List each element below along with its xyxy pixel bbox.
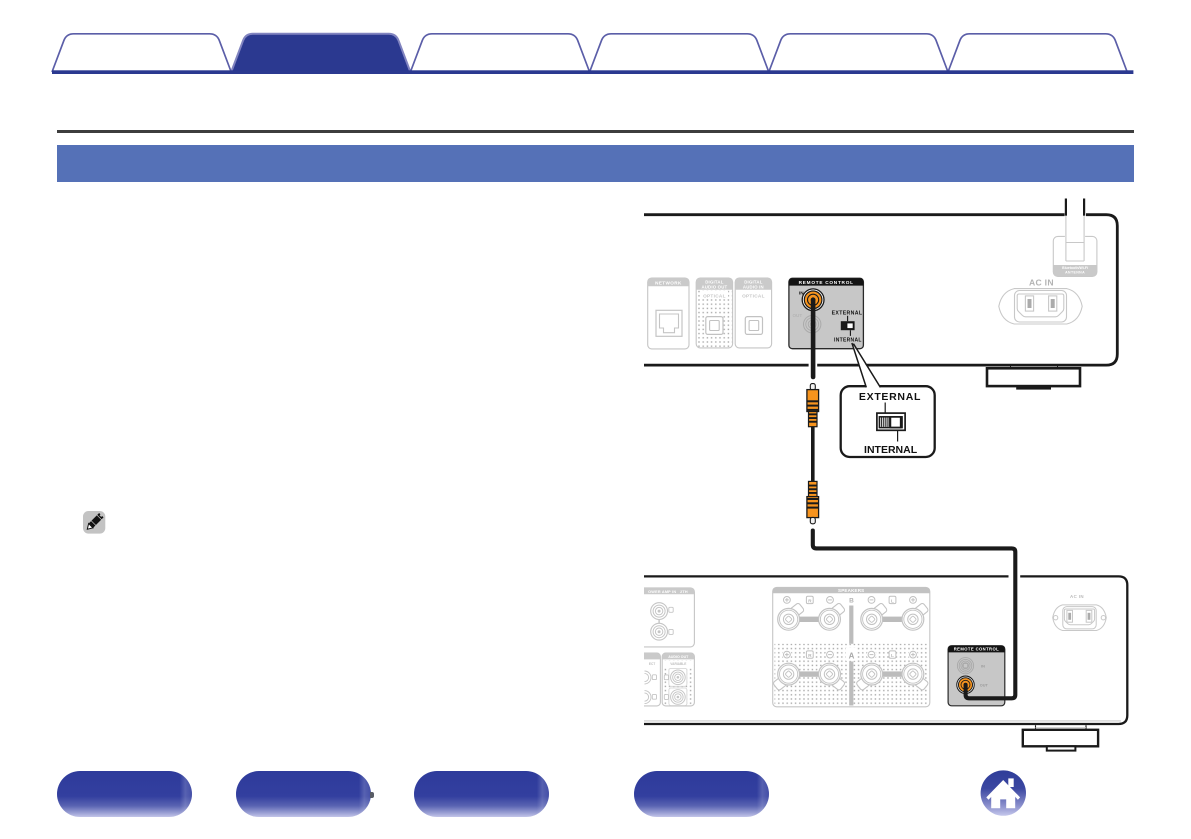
svg-text:AC IN: AC IN xyxy=(1070,594,1084,599)
svg-text:A: A xyxy=(849,651,855,660)
svg-text:L: L xyxy=(891,598,894,604)
svg-text:AUDIO IN: AUDIO IN xyxy=(743,285,764,290)
svg-text:ANTENNA: ANTENNA xyxy=(1065,271,1085,275)
svg-text:SPEAKERS: SPEAKERS xyxy=(838,588,864,593)
svg-text:INTERNAL: INTERNAL xyxy=(864,444,918,456)
svg-text:INTERNAL: INTERNAL xyxy=(834,337,862,343)
svg-text:AUDIO OUT: AUDIO OUT xyxy=(668,655,689,659)
svg-text:IN: IN xyxy=(981,664,985,668)
svg-text:REMOTE CONTROL: REMOTE CONTROL xyxy=(954,647,999,652)
svg-text:AUDIO OUT: AUDIO OUT xyxy=(701,285,727,290)
svg-text:R: R xyxy=(808,653,812,659)
svg-text:OUT: OUT xyxy=(792,313,802,318)
svg-text:L: L xyxy=(891,653,894,659)
svg-text:OPTICAL: OPTICAL xyxy=(703,293,726,298)
svg-text:REMOTE CONTROL: REMOTE CONTROL xyxy=(799,280,854,285)
svg-text:OWER AMP IN 2TH: OWER AMP IN 2TH xyxy=(648,590,688,594)
svg-text:VARIABLE: VARIABLE xyxy=(670,662,686,666)
svg-text:EXTERNAL: EXTERNAL xyxy=(832,311,863,317)
svg-text:IN: IN xyxy=(799,291,804,296)
svg-text:B: B xyxy=(849,598,854,605)
svg-text:AC IN: AC IN xyxy=(1029,278,1054,288)
svg-text:R: R xyxy=(808,598,812,604)
svg-text:OPTICAL: OPTICAL xyxy=(742,293,765,298)
svg-text:Bluetooth/Wi-Fi: Bluetooth/Wi-Fi xyxy=(1062,266,1088,270)
svg-text:EXTERNAL: EXTERNAL xyxy=(859,391,921,403)
svg-text:ECT: ECT xyxy=(649,662,655,666)
svg-text:OUT: OUT xyxy=(980,684,989,688)
svg-text:NETWORK: NETWORK xyxy=(655,280,682,285)
